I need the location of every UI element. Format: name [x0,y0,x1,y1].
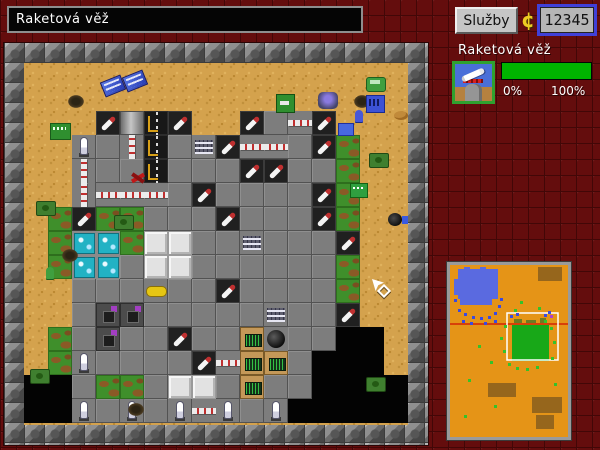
map-tile-plate[interactable] [240,399,264,423]
minimap-water [454,279,458,295]
map-tile-garage[interactable] [120,303,144,327]
map-tile-camo[interactable] [336,159,360,183]
map-frame [4,43,428,445]
minimap-unit-dot [478,345,481,348]
map-tile-building-white[interactable] [192,375,216,399]
sprite-tank[interactable] [36,201,56,216]
map-tile-plate[interactable] [168,303,192,327]
map-tile-plate[interactable] [240,207,264,231]
map-tile-pipe-vertical[interactable] [120,135,144,159]
minimap-unit-dot [494,312,497,315]
map-tile-plate[interactable] [192,231,216,255]
minimap-unit-dot [553,341,556,344]
map-tile-plate[interactable] [264,207,288,231]
minimap-unit-dot [544,320,547,323]
map-tile-plate[interactable] [288,303,312,327]
map-tile-plate[interactable] [168,183,192,207]
map-tile-missile[interactable] [72,135,96,159]
map-tile-plate[interactable] [72,327,96,351]
map-tile-plate[interactable] [264,231,288,255]
map-tile-plate[interactable] [264,183,288,207]
sprite-crate[interactable] [122,69,148,92]
map-tile-turret[interactable] [312,111,336,135]
map-tile-missile[interactable] [72,351,96,375]
map-tile-plate[interactable] [288,135,312,159]
map-tile-camo[interactable] [48,351,72,375]
sprite-shrub[interactable] [68,95,84,108]
minimap-unit-dot [550,315,553,318]
map-tile-plate[interactable] [288,375,312,399]
map-tile-turret[interactable] [240,111,264,135]
map-tile-camo[interactable] [120,231,144,255]
missile-tower-icon[interactable] [452,61,495,104]
map-tile-manhole[interactable] [384,207,408,231]
minimap-dirt-patch [536,415,554,429]
map-tile-camo[interactable] [96,375,120,399]
minimap-unit-dot [488,316,491,319]
map-tile-plate[interactable] [144,351,168,375]
sprite-soldier-blue[interactable] [355,110,363,122]
map-tile-plate[interactable] [192,255,216,279]
minimap-unit-dot [548,311,551,314]
progress-max-label: 100% [551,84,585,98]
minimap-unit-dot [494,320,497,323]
minimap-unit-dot [551,357,554,360]
map-tile-void[interactable] [336,399,360,423]
map-tile-barracks[interactable] [240,231,264,255]
map-tile-turret[interactable] [216,135,240,159]
map-tile-plate[interactable] [168,135,192,159]
minimap-unit-dot [544,314,547,317]
map-tile-plate[interactable] [264,375,288,399]
minimap-unit-dot [550,327,553,330]
map-tile-void[interactable] [384,375,408,399]
map-tile-plate[interactable] [240,303,264,327]
map-tile-pipe-horizontal[interactable] [120,183,144,207]
map-tile-runway[interactable] [144,135,168,159]
map-tile-turret[interactable] [216,207,240,231]
map-tile-plate[interactable] [312,255,336,279]
map-tile-camo[interactable] [336,279,360,303]
minimap-zone-fringe [526,320,536,323]
map-tile-turret[interactable] [336,231,360,255]
map-tile-plate[interactable] [96,351,120,375]
sprite-tank[interactable] [114,215,134,230]
minimap-unit-dot [526,368,529,371]
map-tile-plate[interactable] [192,207,216,231]
minimap-unit-dot [480,317,483,320]
map-tile-turret[interactable] [240,159,264,183]
map-tile-plate[interactable] [216,231,240,255]
map-tile-camo[interactable] [336,135,360,159]
map-tile-machine[interactable] [120,111,144,135]
sprite-shrub[interactable] [128,403,144,416]
sprite-shrub[interactable] [62,249,78,262]
map-tile-building-white[interactable] [168,375,192,399]
build-progress-bar [501,62,592,80]
map-tile-plate[interactable] [240,183,264,207]
minimap[interactable] [447,262,571,440]
map-tile-pipe-vertical[interactable] [72,183,96,207]
map-tile-turret[interactable] [312,207,336,231]
map-tile-pipe-horizontal[interactable] [240,135,264,159]
minimap-unit-dot [464,313,467,316]
minimap-unit-dot [494,405,497,408]
build-progress-fill [502,63,591,79]
minimap-water [458,269,498,299]
map-tile-pipe-horizontal[interactable] [144,183,168,207]
map-tile-plate[interactable] [288,207,312,231]
minimap-unit-dot [462,320,465,323]
map-tile-control-panel[interactable] [240,327,264,351]
map-tile-void[interactable] [312,351,336,375]
map-tile-plate[interactable] [144,303,168,327]
map-tile-pipe-horizontal[interactable] [192,399,216,423]
sprite-dune[interactable] [394,111,408,120]
map-tile-plate[interactable] [216,255,240,279]
map-tile-camo[interactable] [336,255,360,279]
map-tile-void[interactable] [336,327,360,351]
map-tile-plate[interactable] [216,375,240,399]
minimap-unit-dot [504,325,507,328]
minimap-unit-dot [484,322,487,325]
map-tile-plate[interactable] [312,231,336,255]
minimap-unit-dot [538,307,541,310]
minimap-unit-dot [472,316,475,319]
map-tile-camo[interactable] [120,375,144,399]
map-tile-building-white[interactable] [168,231,192,255]
map-tile-plate[interactable] [168,207,192,231]
map-tile-turret[interactable] [312,135,336,159]
minimap-base-zone [512,323,549,361]
map-tile-plate[interactable] [192,327,216,351]
tower-graphic [465,84,482,101]
map-tile-plate[interactable] [96,399,120,423]
map-tile-control-panel[interactable] [240,375,264,399]
map-tile-garage[interactable] [96,303,120,327]
minimap-unit-dot [458,309,461,312]
map-tile-pipe-horizontal[interactable] [264,135,288,159]
map-tile-plate[interactable] [288,255,312,279]
minimap-water [460,299,492,305]
map-tile-building-white[interactable] [168,255,192,279]
map-tile-pipe-vertical[interactable] [72,159,96,183]
map-tile-plate[interactable] [264,255,288,279]
minimap-unit-dot [500,298,503,301]
map-tile-plate[interactable] [168,159,192,183]
map-tile-turret[interactable] [312,183,336,207]
money-display: 12345 [537,4,597,36]
mouse-cursor [372,279,389,296]
map-tile-plate[interactable] [192,279,216,303]
map-tile-missile[interactable] [216,399,240,423]
map-tile-turret[interactable] [264,159,288,183]
sprite-truck[interactable] [366,77,386,92]
sprite-tank[interactable] [30,369,50,384]
minimap-unit-dot [470,322,473,325]
map-tile-turret[interactable] [192,183,216,207]
map-tile-plate[interactable] [192,303,216,327]
minimap-unit-dot [536,366,539,369]
map-tile-void[interactable] [48,375,72,399]
map-tile-plate[interactable] [288,279,312,303]
map-tile-plate[interactable] [144,207,168,231]
map-tile-plate[interactable] [144,375,168,399]
map-tile-void[interactable] [312,399,336,423]
map-tile-plate[interactable] [264,279,288,303]
minimap-dirt-patch [538,267,562,281]
map-tile-lab-cyan[interactable] [96,255,120,279]
map-tile-void[interactable] [336,375,360,399]
map-tile-plate[interactable] [72,279,96,303]
map-tile-void[interactable] [48,399,72,423]
map-tile-plate[interactable] [120,351,144,375]
map-tile-void[interactable] [24,399,48,423]
build-item-title: Raketová věž [458,43,551,58]
map-tile-void[interactable] [336,351,360,375]
map-tile-plate[interactable] [168,351,192,375]
sprite-vehicle-blue[interactable] [338,123,354,136]
map-tile-camo[interactable] [48,327,72,351]
map-tile-lab-cyan[interactable] [96,231,120,255]
map-tile-plate[interactable] [288,351,312,375]
sprite-tank[interactable] [366,377,386,392]
map-tile-plate[interactable] [312,279,336,303]
map-tile-void[interactable] [288,399,312,423]
map-tile-plate[interactable] [288,327,312,351]
map-tile-plate[interactable] [96,279,120,303]
selection-title-field[interactable]: Raketová věž [7,6,363,33]
map-tile-generator[interactable] [264,327,288,351]
minimap-unit-dot [468,379,471,382]
minimap-unit-dot [514,309,517,312]
map-tile-plate[interactable] [216,303,240,327]
map-tile-turret[interactable] [168,327,192,351]
sprite-mech[interactable] [318,92,338,109]
map-tile-plate[interactable] [240,255,264,279]
minimap-zone-fringe [514,319,522,323]
map-tile-plate[interactable] [120,255,144,279]
map-tile-plate[interactable] [144,399,168,423]
services-button[interactable]: Služby [455,7,518,34]
minimap-unit-dot [503,350,506,353]
game-screen: { "topbar": { "title_field": "Raketová v… [0,0,600,450]
map-tile-plate[interactable] [312,159,336,183]
map-tile-turret[interactable] [72,207,96,231]
sprite-tank[interactable] [369,153,389,168]
map-tile-missile[interactable] [264,399,288,423]
map-tile-barracks[interactable] [192,135,216,159]
map-tile-plate[interactable] [120,279,144,303]
sprite-flag[interactable] [276,94,295,113]
minimap-unit-dot [554,383,557,386]
sprite-bunker[interactable] [50,123,71,140]
map-tile-void[interactable] [384,399,408,423]
map-tile-runway[interactable] [144,111,168,135]
map-tile-plate[interactable] [216,159,240,183]
map-tile-garage[interactable] [96,327,120,351]
map-tile-camo[interactable] [336,207,360,231]
minimap-unit-dot [516,313,519,316]
map-tile-plate[interactable] [192,159,216,183]
map-tile-plate[interactable] [96,135,120,159]
map-tile-turret[interactable] [96,111,120,135]
map-tile-vehicle-yellow[interactable] [144,279,168,303]
map-tile-plate[interactable] [168,279,192,303]
map-tile-pipe-horizontal[interactable] [288,111,312,135]
minimap-unit-dot [500,337,503,340]
sprite-bldg[interactable] [366,95,385,113]
map-tile-missile[interactable] [168,399,192,423]
map-tile-turret[interactable] [216,279,240,303]
minimap-dirt-patch [532,397,562,413]
map-tile-void[interactable] [360,351,384,375]
game-map[interactable] [24,63,408,425]
minimap-unit-dot [508,363,511,366]
map-tile-plate[interactable] [240,279,264,303]
map-tile-plate[interactable] [120,327,144,351]
map-tile-runway[interactable] [144,159,168,183]
minimap-unit-dot [454,299,457,302]
map-tile-turret[interactable] [336,303,360,327]
map-tile-void[interactable] [360,327,384,351]
map-tile-control-panel[interactable] [240,351,264,375]
minimap-unit-dot [520,301,523,304]
sprite-soldier-green[interactable] [46,267,54,279]
map-tile-building-white[interactable] [144,255,168,279]
map-tile-plate[interactable] [144,327,168,351]
map-tile-void[interactable] [360,399,384,423]
map-tile-missile[interactable] [72,399,96,423]
minimap-water [464,267,470,271]
map-tile-void[interactable] [312,375,336,399]
sprite-box[interactable] [350,183,368,198]
map-tile-control-panel[interactable] [264,351,288,375]
minimap-unit-dot [490,361,493,364]
map-tile-plate[interactable] [216,327,240,351]
map-tile-plate[interactable] [288,159,312,183]
map-tile-plate[interactable] [216,183,240,207]
map-tile-plate[interactable] [312,303,336,327]
map-tile-plate[interactable] [312,327,336,351]
minimap-unit-dot [516,367,519,370]
map-tile-turret[interactable] [168,111,192,135]
map-tile-plate[interactable] [96,159,120,183]
map-tile-plate[interactable] [288,231,312,255]
minimap-unit-dot [510,315,513,318]
minimap-dirt-patch [488,383,516,397]
map-tile-turret[interactable] [192,351,216,375]
minimap-unit-dot [464,415,467,418]
progress-min-label: 0% [503,84,522,98]
map-tile-plate[interactable] [264,111,288,135]
map-tile-pipe-horizontal[interactable] [216,351,240,375]
minimap-water [480,267,486,271]
minimap-unit-dot [498,305,501,308]
map-tile-barracks[interactable] [264,303,288,327]
map-tile-pipe-horizontal[interactable] [96,183,120,207]
map-tile-plate[interactable] [72,375,96,399]
map-tile-plate[interactable] [72,303,96,327]
sprite-bird[interactable] [130,171,146,185]
map-tile-plate[interactable] [288,183,312,207]
coin-icon: ¢ [519,7,537,33]
map-tile-building-white[interactable] [144,231,168,255]
